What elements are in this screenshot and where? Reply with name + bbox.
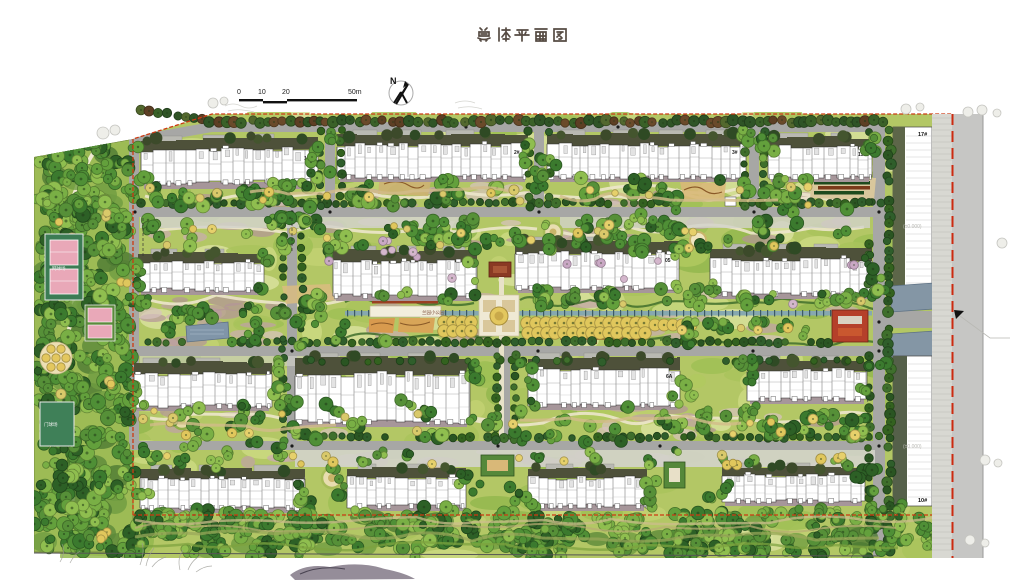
svg-text:10#: 10# (918, 498, 927, 504)
svg-text:05: 05 (665, 258, 671, 264)
svg-text:3#: 3# (732, 150, 738, 156)
svg-text:兰园小公园: 兰园小公园 (422, 309, 445, 316)
svg-text:6A: 6A (666, 374, 673, 380)
svg-text:17#: 17# (918, 132, 927, 138)
